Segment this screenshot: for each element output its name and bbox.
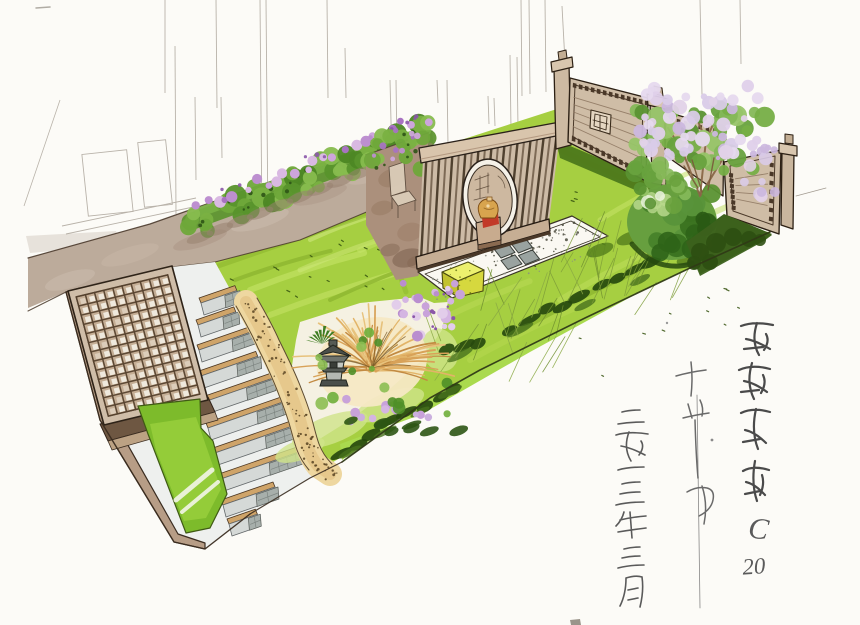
svg-text:20: 20 — [741, 553, 766, 580]
